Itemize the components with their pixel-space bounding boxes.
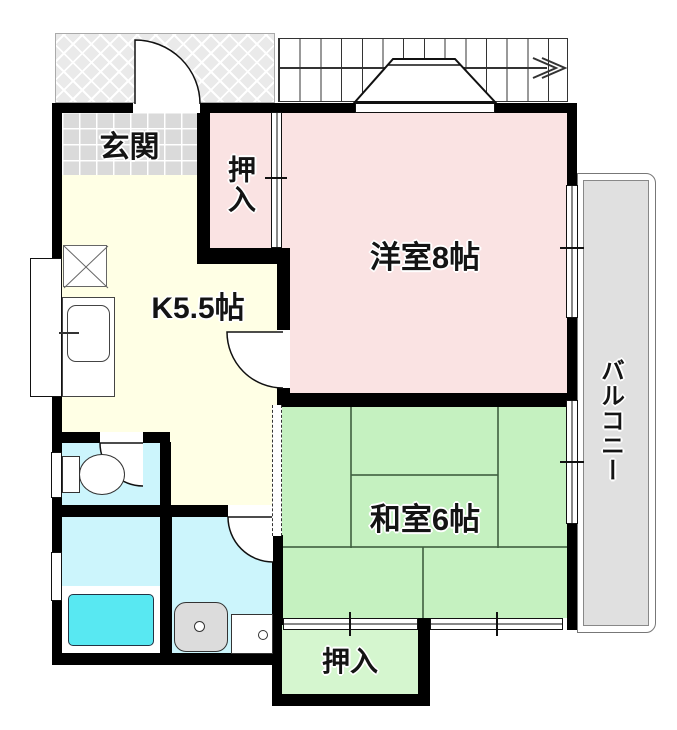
wall-right <box>567 103 577 630</box>
tatami-line <box>422 547 424 618</box>
window-tick <box>560 247 584 249</box>
kitchen-western-door-icon <box>225 330 285 390</box>
basin-drain-icon <box>194 621 205 632</box>
genkan-label: 玄関 <box>62 112 197 176</box>
tatami-line <box>351 474 498 476</box>
japanese-room-label: 和室6帖 <box>290 490 560 542</box>
kitchen-bay-window <box>30 258 62 397</box>
toilet-bowl-icon <box>79 454 125 495</box>
faucet-icon <box>59 332 79 334</box>
stair-landing <box>348 53 502 107</box>
western-room-balcony-window <box>566 185 578 318</box>
kitchen-label: K5.5帖 <box>88 280 308 330</box>
wall-closet-lower-left <box>272 618 282 706</box>
toilet-window <box>51 452 62 498</box>
stairs-direction-arrow-icon <box>525 50 575 86</box>
closet-upper-label: 押入 <box>205 125 275 245</box>
bath-window <box>51 552 62 601</box>
balcony-label: バルコニー <box>582 315 638 525</box>
window-tick <box>560 461 584 463</box>
toilet-tank-icon <box>62 456 80 493</box>
kitchen-japanese-opening <box>272 405 282 536</box>
wall-closet-lower-bottom <box>272 694 430 706</box>
washer-drain-icon <box>258 630 268 640</box>
wall-western-japanese <box>277 393 577 407</box>
wall-closet-lower-right <box>418 618 430 706</box>
entrance-door-icon <box>130 36 205 108</box>
closet-lower-label: 押入 <box>282 630 418 690</box>
washing-machine-space-icon <box>231 614 273 654</box>
western-room-label: 洋室8帖 <box>290 228 560 280</box>
window-tick <box>496 612 498 636</box>
washroom-door-icon <box>226 515 275 564</box>
floor-plan: 玄関 押入 洋室8帖 K5.5帖 和室6帖 押入 バルコニー <box>0 0 677 730</box>
bathtub-icon <box>68 594 154 646</box>
wall-bottom <box>52 653 282 665</box>
wash-basin-icon <box>174 602 228 652</box>
wall-bath-washroom <box>160 517 172 653</box>
